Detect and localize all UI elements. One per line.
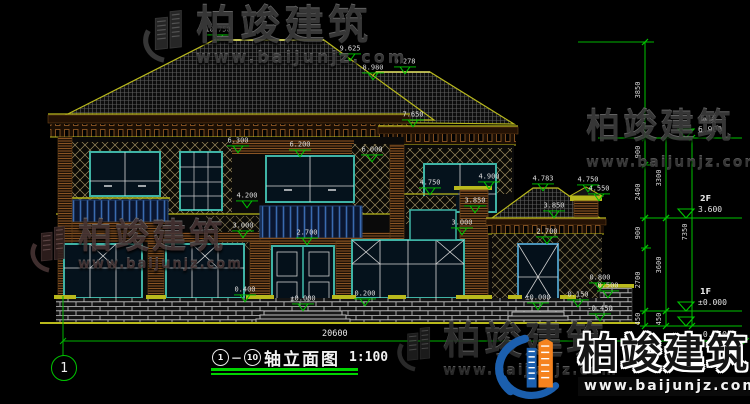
overall-dimension: 20600 (322, 329, 348, 339)
title-axis-start: 1 (212, 349, 229, 366)
title-axis-end: 10 (244, 349, 261, 366)
annotation-lines (0, 0, 750, 404)
axis-bubble-1: 1 (51, 355, 77, 381)
title-name: 轴立面图 (264, 345, 340, 370)
title-underline (211, 373, 358, 375)
cad-elevation-screenshot: 10.7509.6258.9809.2787.6506.3006.2006.00… (0, 0, 750, 404)
title-dash: － (231, 350, 242, 366)
drawing-title: 1 － 10 轴立面图 1:100 (212, 345, 388, 370)
title-underline (211, 368, 358, 371)
title-scale: 1:100 (349, 350, 388, 365)
